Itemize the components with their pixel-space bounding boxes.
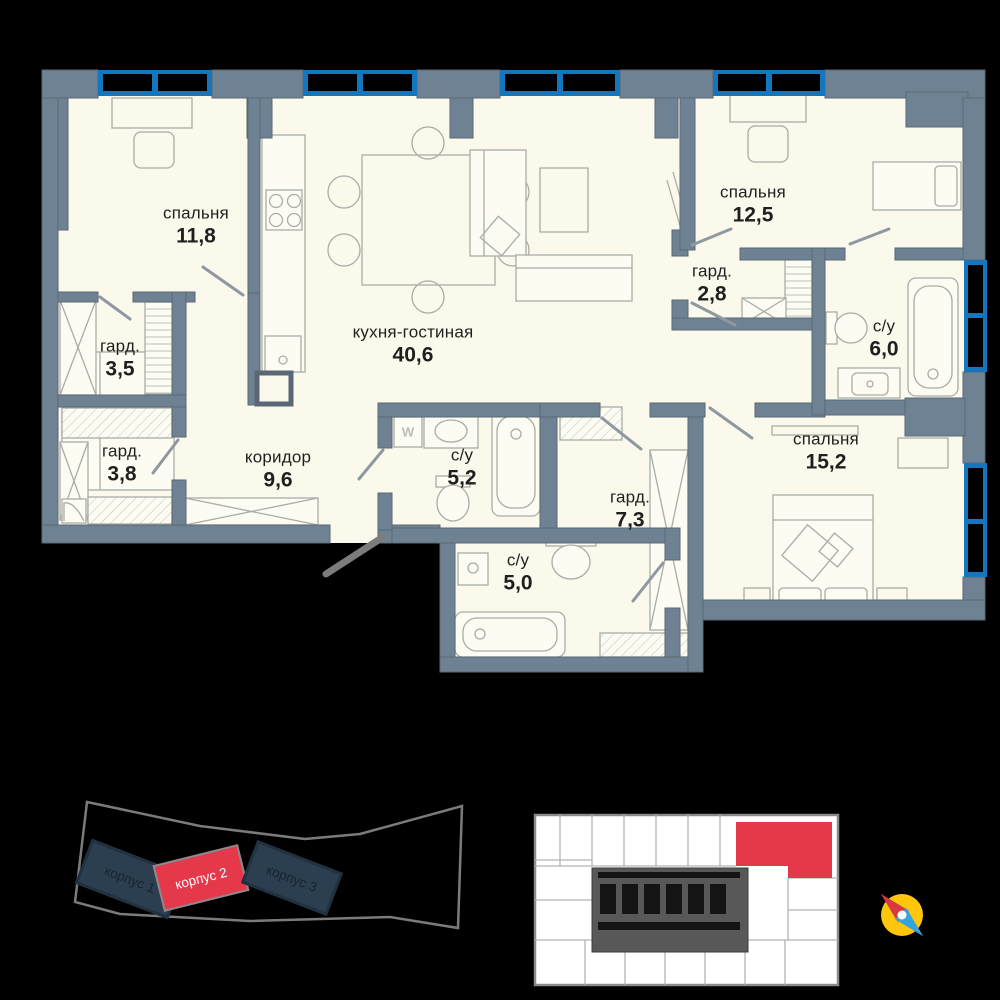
- apartment-floor-plan: [0, 0, 1000, 1000]
- kitchen-counter: [262, 135, 305, 372]
- floor-plan-page: спальня 11,8 гард. 3,5 гард. 3,8 коридор…: [0, 0, 1000, 1000]
- floor-overview: [535, 815, 838, 985]
- compass-icon: [875, 888, 929, 942]
